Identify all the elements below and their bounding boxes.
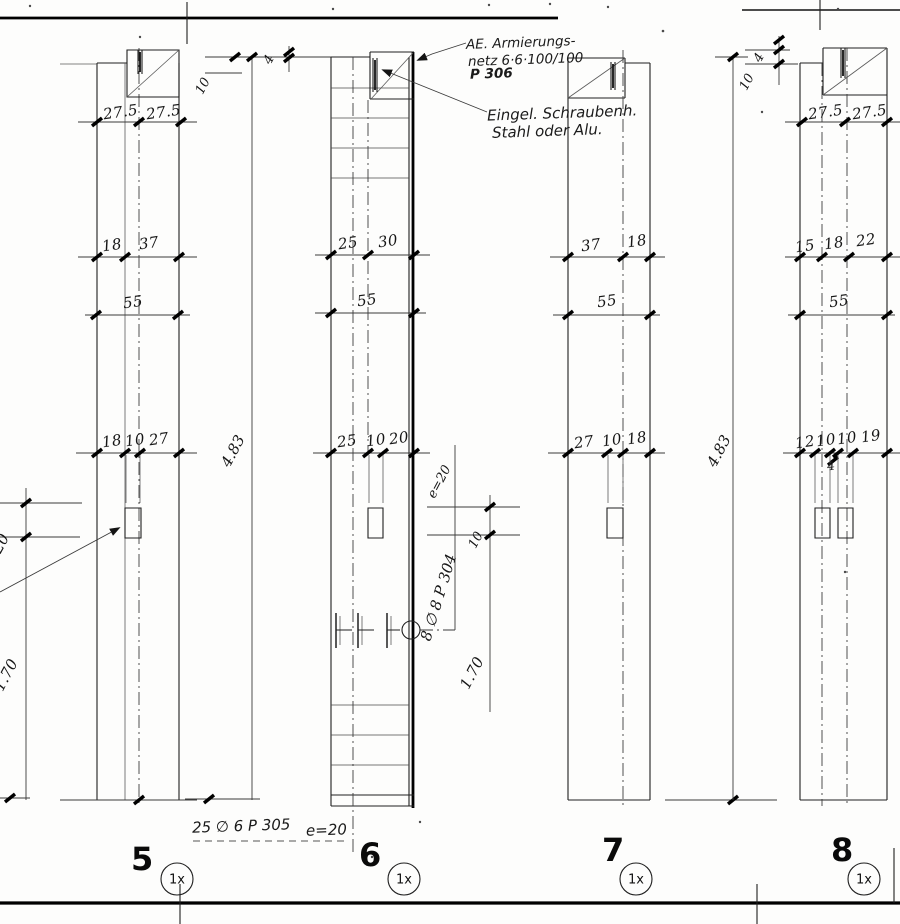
opening — [838, 508, 853, 538]
dim-label: 18 — [101, 235, 123, 256]
drawing-sheet: 27.5 27.5 18 37 55 18 10 27 25 30 55 25 … — [0, 0, 900, 924]
sheet-borders — [0, 0, 900, 924]
dim-label: 10 — [601, 430, 623, 451]
dim-label: 55 — [356, 290, 378, 311]
panel-number-8: 8 — [831, 831, 853, 869]
dim-label: 27 — [148, 429, 170, 450]
dim-label: 18 — [101, 431, 123, 452]
mesh-note-line3: P 306 — [470, 65, 513, 82]
dim-label: 10 — [365, 430, 387, 451]
panel-6-drawing — [193, 52, 520, 856]
panel-number-6: 6 — [359, 836, 381, 874]
dim-label: 25 — [337, 233, 359, 254]
left-margin-dims — [0, 488, 119, 802]
dim-label: 18 — [626, 231, 648, 252]
dim-label: 55 — [596, 291, 618, 312]
insert-note-line2: Stahl oder Alu. — [492, 120, 603, 142]
multiplier-label-7: 1x — [628, 873, 644, 888]
dim-label: 55 — [828, 291, 850, 312]
opening — [607, 508, 623, 538]
opening — [368, 508, 383, 538]
dim-label: 55 — [122, 292, 144, 313]
height-dim-7-8 — [715, 53, 748, 800]
bottom-bars-note: 25 ∅ 6 P 305 — [192, 815, 291, 836]
dim-label: 22 — [855, 230, 877, 251]
panel-7-drawing — [548, 50, 777, 806]
multiplier-label-8: 1x — [856, 873, 872, 888]
panel-number-5: 5 — [131, 840, 153, 878]
multiplier-label-5: 1x — [169, 873, 185, 888]
dim-label: 10 — [124, 430, 146, 451]
dim-label: 37 — [580, 235, 602, 256]
dim-label: 18 — [823, 233, 845, 254]
opening-leader-arrow — [0, 528, 119, 592]
dim-label: 10 — [815, 430, 837, 451]
dim-label: 18 — [626, 428, 648, 449]
dim-label: 15 — [794, 236, 816, 257]
dim-label: 25 — [336, 431, 358, 452]
mesh-note-leader — [418, 43, 466, 60]
opening — [815, 508, 830, 538]
multiplier-label-6: 1x — [396, 873, 412, 888]
drawing-linework — [0, 0, 900, 924]
multiplier-circles — [161, 863, 880, 895]
dim-label: 30 — [377, 231, 399, 252]
panel-number-7: 7 — [602, 831, 624, 869]
dim-label: 12 — [794, 432, 816, 453]
dim-label: 20 — [388, 428, 410, 449]
panel-8-drawing — [745, 36, 900, 806]
panel-5-drawing — [60, 48, 197, 806]
height-dim-5-6 — [185, 46, 331, 803]
dim-label: 19 — [860, 426, 882, 447]
dim-label: 37 — [138, 233, 160, 254]
bottom-bars-spacing-note: e=20 — [306, 820, 347, 839]
dim-label: 27 — [573, 432, 595, 453]
dim-label: 10 — [836, 428, 858, 449]
